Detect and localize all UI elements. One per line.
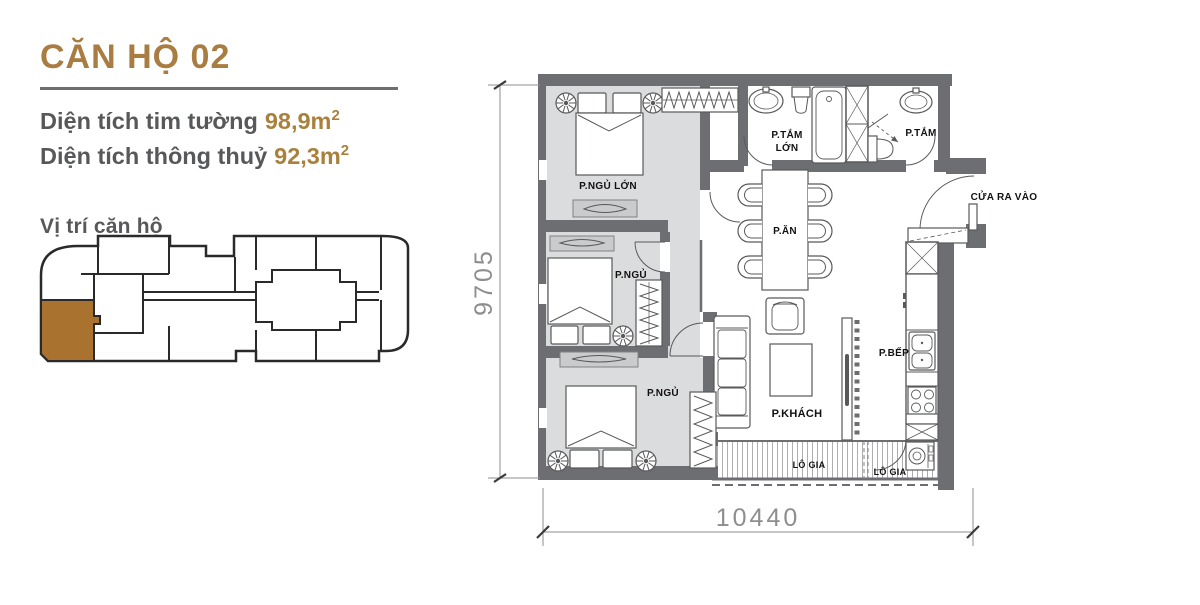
label-master-bedroom: P.NGỦ LỚN: [579, 179, 637, 192]
label-entrance: CỬA RA VÀO: [971, 190, 1038, 203]
chair-icon: [738, 256, 762, 278]
ceiling-fan-icon: [556, 93, 576, 113]
label-dining: P.ĂN: [773, 224, 797, 237]
chair-icon: [808, 220, 832, 242]
unit-title: CĂN HỘ 02: [40, 38, 440, 77]
title-divider: [40, 87, 398, 90]
ceiling-fan-icon: [548, 451, 568, 471]
area-row-clear: Diện tích thông thuỷ92,3m2: [40, 136, 440, 171]
info-panel: CĂN HỘ 02 Diện tích tim tường98,9m2 Diện…: [40, 38, 440, 239]
ceiling-fan-icon: [643, 93, 663, 113]
washing-machine: [906, 442, 934, 470]
label-bedroom2: P.NGỦ: [615, 268, 647, 281]
label-loggia-main: LÔ GIA: [793, 459, 826, 470]
entrance: [908, 176, 977, 243]
label-kitchen: P.BẾP: [879, 346, 909, 359]
building-core-right: [256, 270, 356, 330]
area-row-wall: Diện tích tim tường98,9m2: [40, 101, 440, 136]
vent-shaft: [846, 86, 868, 162]
label-bathroom: P.TẮM: [905, 126, 936, 139]
dimension-height: 9705: [470, 248, 498, 316]
chair-icon: [738, 220, 762, 242]
area-value: 92,3m2: [274, 143, 349, 169]
highlighted-unit: [41, 300, 100, 361]
small-bathroom-fixtures: [868, 88, 935, 165]
dimension-width: 10440: [716, 504, 801, 532]
closet: [662, 88, 738, 112]
label-living: P.KHÁCH: [772, 407, 823, 420]
label-bedroom3: P.NGỦ: [647, 386, 679, 399]
floor-plan: P.NGỦ LỚN P.TẮM LỚN P.TẮM P.ĂN CỬA RA VÀ…: [450, 50, 1090, 595]
area-label: Diện tích thông thuỷ: [40, 143, 267, 169]
area-value: 98,9m2: [265, 108, 340, 134]
chair-icon: [738, 184, 762, 206]
building-core-left: [94, 274, 143, 333]
chair-icon: [808, 256, 832, 278]
building-position-map: [38, 230, 410, 370]
master-door-arc: [710, 192, 740, 222]
area-label: Diện tích tim tường: [40, 108, 258, 134]
label-big-bathroom: P.TẮM: [771, 128, 802, 141]
label-loggia-small: LÔ GIA: [874, 466, 907, 477]
ceiling-fan-icon: [636, 451, 656, 471]
ceiling-fan-icon: [613, 326, 633, 346]
chair-icon: [808, 184, 832, 206]
label-big-bathroom-2: LỚN: [776, 141, 799, 154]
